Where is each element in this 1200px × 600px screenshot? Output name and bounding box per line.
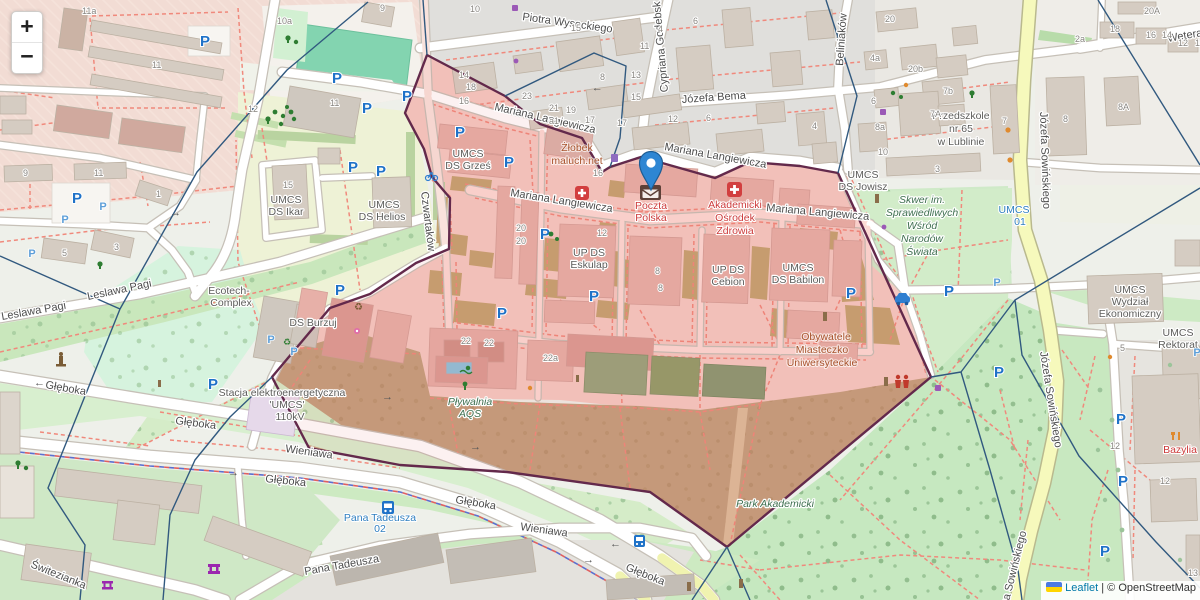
svg-text:7: 7 [1002, 116, 1007, 126]
svg-text:→: → [228, 467, 239, 479]
svg-text:P: P [61, 214, 68, 226]
svg-text:Stacja elektroenergetyczna: Stacja elektroenergetyczna [219, 387, 346, 399]
svg-text:6: 6 [871, 96, 876, 106]
svg-text:110kV: 110kV [276, 411, 305, 423]
svg-text:11: 11 [152, 60, 161, 70]
svg-text:20: 20 [885, 14, 895, 24]
svg-text:11: 11 [330, 98, 339, 108]
svg-text:→: → [583, 554, 594, 566]
svg-text:Skwer im.: Skwer im. [899, 194, 945, 206]
svg-text:P: P [28, 248, 35, 260]
svg-text:19: 19 [566, 105, 576, 115]
svg-text:P: P [376, 163, 386, 180]
svg-text:20: 20 [516, 236, 526, 246]
svg-text:12: 12 [1110, 441, 1120, 451]
svg-text:22: 22 [461, 336, 471, 346]
svg-text:maluch.net: maluch.net [551, 155, 602, 167]
svg-text:10: 10 [1195, 38, 1200, 48]
svg-text:P: P [348, 159, 358, 176]
svg-text:8: 8 [1063, 114, 1068, 124]
svg-text:DS Grześ: DS Grześ [445, 160, 491, 172]
svg-text:DS Jowisz: DS Jowisz [838, 181, 887, 193]
svg-text:6: 6 [706, 113, 711, 123]
svg-text:7b: 7b [943, 86, 953, 96]
svg-text:'UMCS': 'UMCS' [270, 399, 305, 411]
svg-text:4: 4 [658, 24, 663, 34]
svg-text:P: P [1118, 473, 1128, 490]
svg-text:Wśród: Wśród [907, 220, 938, 232]
svg-text:02: 02 [374, 523, 386, 535]
svg-text:12: 12 [668, 114, 678, 124]
svg-text:Ośrodek: Ośrodek [715, 212, 755, 224]
svg-text:w Lublinie: w Lublinie [937, 136, 985, 148]
svg-text:nr 65: nr 65 [949, 123, 973, 135]
svg-text:P: P [846, 285, 856, 302]
svg-text:UMCS: UMCS [369, 199, 400, 211]
svg-text:22: 22 [484, 338, 494, 348]
svg-text:20: 20 [516, 223, 526, 233]
svg-text:11: 11 [94, 168, 103, 178]
svg-text:UMCS: UMCS [1163, 327, 1194, 339]
svg-text:AQS: AQS [458, 408, 481, 420]
svg-text:18: 18 [466, 82, 476, 92]
svg-text:P: P [1116, 411, 1126, 428]
svg-text:P: P [1193, 347, 1200, 359]
svg-text:P: P [1100, 543, 1110, 560]
svg-text:3: 3 [935, 164, 940, 174]
svg-text:P: P [402, 88, 412, 105]
svg-text:2a: 2a [1075, 34, 1085, 44]
svg-text:8: 8 [600, 72, 605, 82]
svg-text:16: 16 [1146, 30, 1156, 40]
svg-text:17: 17 [585, 115, 595, 125]
svg-text:9: 9 [23, 168, 28, 178]
svg-text:UP DS: UP DS [573, 247, 605, 259]
svg-text:Pływalnia: Pływalnia [448, 396, 493, 408]
svg-text:UMCS: UMCS [453, 148, 484, 160]
svg-text:↑: ↑ [591, 87, 603, 93]
svg-text:Bazylia: Bazylia [1163, 444, 1197, 456]
svg-text:Zdrowia: Zdrowia [716, 225, 754, 237]
svg-text:10a: 10a [277, 16, 292, 26]
svg-text:18: 18 [1110, 24, 1120, 34]
svg-text:Ekonomiczny: Ekonomiczny [1099, 308, 1162, 320]
svg-text:DS Ikar: DS Ikar [268, 206, 304, 218]
svg-text:8: 8 [655, 266, 660, 276]
svg-text:P: P [267, 334, 274, 346]
svg-text:UMCS: UMCS [999, 204, 1030, 216]
svg-text:Poczta: Poczta [635, 200, 667, 212]
svg-text:Sprawiedliwych: Sprawiedliwych [886, 207, 959, 219]
svg-text:Polska: Polska [635, 212, 667, 224]
svg-text:P: P [208, 376, 218, 393]
svg-text:Rektorat: Rektorat [1158, 339, 1198, 351]
svg-text:a1: a1 [549, 116, 559, 126]
svg-text:♻: ♻ [354, 302, 363, 313]
svg-text:P: P [290, 346, 297, 358]
svg-text:8A: 8A [1118, 102, 1129, 112]
svg-text:11a: 11a [82, 6, 96, 16]
svg-text:3: 3 [114, 242, 119, 252]
svg-text:Park Akademicki: Park Akademicki [736, 498, 814, 510]
svg-text:16: 16 [593, 168, 603, 178]
svg-text:Akademicki: Akademicki [708, 199, 762, 211]
svg-text:DS Burzuj: DS Burzuj [289, 317, 336, 329]
svg-text:15: 15 [571, 23, 581, 33]
svg-text:12: 12 [1178, 38, 1188, 48]
svg-text:5: 5 [1120, 343, 1125, 353]
svg-text:14: 14 [1162, 30, 1172, 40]
svg-text:P: P [944, 283, 954, 300]
svg-text:→: → [470, 441, 481, 453]
svg-text:20b: 20b [908, 64, 923, 74]
svg-text:17: 17 [617, 118, 627, 128]
svg-text:Ecotech-: Ecotech- [208, 285, 250, 297]
svg-text:←: ← [610, 538, 621, 550]
svg-text:→: → [382, 391, 393, 403]
svg-text:Cebion: Cebion [711, 276, 744, 288]
svg-text:P: P [335, 282, 345, 299]
svg-text:4a: 4a [870, 53, 880, 63]
svg-text:22a: 22a [543, 353, 558, 363]
svg-text:Świata: Świata [906, 245, 938, 258]
svg-text:P: P [332, 70, 342, 87]
svg-text:P: P [497, 305, 507, 322]
svg-text:→: → [170, 207, 181, 219]
svg-text:01: 01 [1014, 216, 1026, 228]
svg-text:12: 12 [1160, 476, 1170, 486]
svg-text:10: 10 [470, 4, 480, 14]
svg-text:12: 12 [597, 228, 607, 238]
svg-text:P: P [99, 201, 106, 213]
svg-text:20A: 20A [1144, 6, 1160, 16]
svg-text:P: P [589, 288, 599, 305]
svg-text:Obywatele: Obywatele [801, 331, 851, 343]
svg-text:1: 1 [156, 189, 161, 199]
svg-text:P: P [200, 33, 210, 50]
svg-text:Narodów: Narodów [901, 233, 944, 245]
svg-text:15: 15 [283, 180, 293, 190]
svg-text:Miasteczko: Miasteczko [796, 344, 849, 356]
svg-text:P: P [993, 277, 1000, 289]
svg-text:11: 11 [640, 41, 649, 51]
svg-text:12: 12 [248, 104, 258, 114]
svg-text:Complex: Complex [210, 297, 252, 309]
svg-text:16: 16 [459, 96, 469, 106]
svg-text:P: P [540, 226, 550, 243]
svg-text:Żłobek: Żłobek [561, 141, 593, 154]
svg-text:←: ← [34, 377, 45, 389]
svg-text:Eskulap: Eskulap [570, 259, 608, 271]
svg-text:Uniwersyteckie: Uniwersyteckie [787, 357, 858, 369]
svg-text:♻: ♻ [283, 337, 291, 347]
svg-text:6: 6 [693, 16, 698, 26]
svg-text:13: 13 [1188, 568, 1198, 578]
svg-text:P: P [994, 364, 1004, 381]
svg-text:7A: 7A [930, 109, 941, 119]
svg-text:15: 15 [631, 92, 641, 102]
svg-text:4: 4 [812, 121, 817, 131]
svg-text:UMCS: UMCS [271, 194, 302, 206]
svg-text:23: 23 [522, 91, 532, 101]
svg-text:P: P [504, 154, 514, 171]
svg-text:P: P [72, 190, 82, 207]
svg-text:DS Helios: DS Helios [359, 211, 406, 223]
svg-text:P: P [455, 124, 465, 141]
svg-text:Wydział: Wydział [1112, 296, 1149, 308]
svg-text:8a: 8a [875, 122, 885, 132]
svg-text:21: 21 [549, 103, 559, 113]
svg-text:13: 13 [631, 70, 641, 80]
svg-text:UMCS: UMCS [783, 262, 814, 274]
svg-text:UMCS: UMCS [848, 169, 879, 181]
svg-text:8: 8 [658, 283, 663, 293]
svg-text:9: 9 [380, 3, 385, 13]
svg-text:5: 5 [62, 248, 67, 258]
svg-text:P: P [362, 100, 372, 117]
svg-text:10: 10 [878, 147, 888, 157]
svg-text:14: 14 [459, 70, 469, 80]
svg-text:UMCS: UMCS [1115, 284, 1146, 296]
svg-text:UP DS: UP DS [712, 264, 744, 276]
svg-text:DS Babilon: DS Babilon [772, 274, 825, 286]
